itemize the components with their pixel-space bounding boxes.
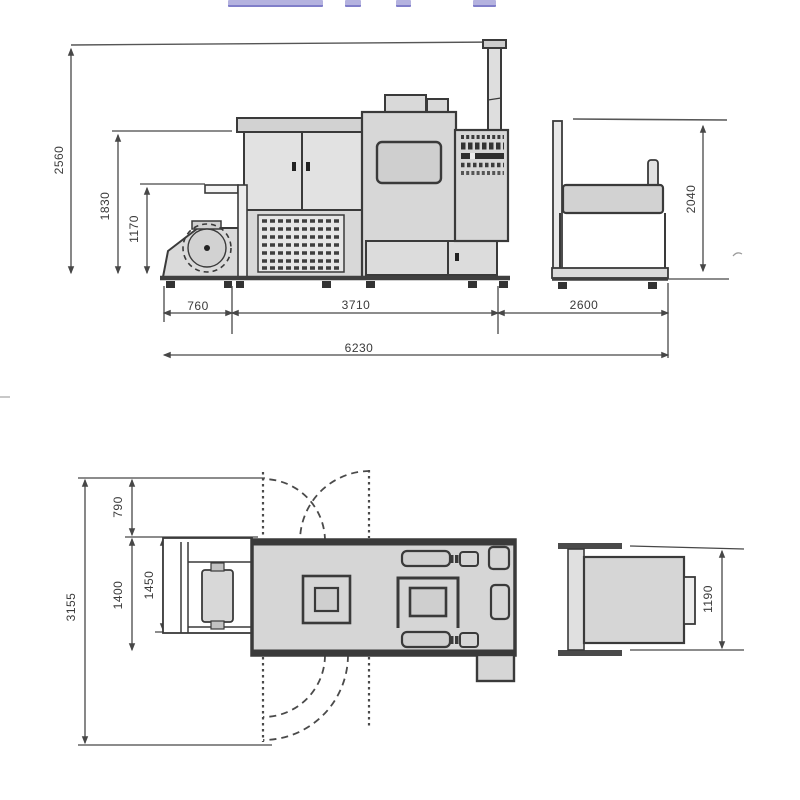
- control-tower: [455, 130, 508, 241]
- pile-board: [202, 570, 233, 622]
- dim-label-depth-delivery: 1190: [701, 585, 715, 613]
- drawer-handle: [455, 253, 459, 261]
- dim-label-depth-overall: 3155: [64, 593, 78, 622]
- diagram-artwork: [0, 0, 800, 800]
- sheet-feeder: [163, 221, 246, 277]
- door-handle-left: [292, 162, 296, 171]
- delivery-tray: [563, 185, 663, 213]
- plan-square-inner: [315, 588, 338, 611]
- viewing-window: [377, 142, 441, 183]
- dim-label-length-body: 3710: [342, 298, 371, 312]
- elevation-view: [71, 40, 729, 358]
- chimney: [483, 40, 506, 132]
- machine-plan: [252, 540, 515, 681]
- dim-label-length-feeder: 760: [187, 299, 209, 313]
- dim-label-depth-feeder: 1450: [142, 571, 156, 600]
- dim-label-length-delivery: 2600: [570, 298, 599, 312]
- table-plan-body: [584, 557, 684, 643]
- machine-base: [160, 278, 510, 288]
- feeder-plan: [163, 538, 252, 633]
- scanned-machine-dimension-diagram: 2560 1830 1170 2040 760 3710 2600 6230 3…: [0, 0, 800, 800]
- dim-label-depth-rear: 790: [111, 496, 125, 518]
- dim-label-height-overall: 2560: [52, 146, 66, 175]
- dim-label-height-body: 1830: [98, 192, 112, 221]
- doored-cabinet: [237, 118, 365, 277]
- scan-artifact-tick: [733, 253, 742, 256]
- door-handle-right: [306, 162, 310, 171]
- dim-label-depth-body: 1400: [111, 581, 125, 610]
- delivery-table-side: [552, 119, 727, 289]
- plan-outfeed-tab: [477, 655, 514, 681]
- dim-label-height-feeder: 1170: [127, 215, 141, 243]
- dim-label-height-delivery: 2040: [684, 185, 698, 214]
- dim-label-length-overall: 6230: [345, 341, 374, 355]
- delivery-table-plan: [558, 543, 695, 656]
- top-reference-line: [71, 42, 500, 45]
